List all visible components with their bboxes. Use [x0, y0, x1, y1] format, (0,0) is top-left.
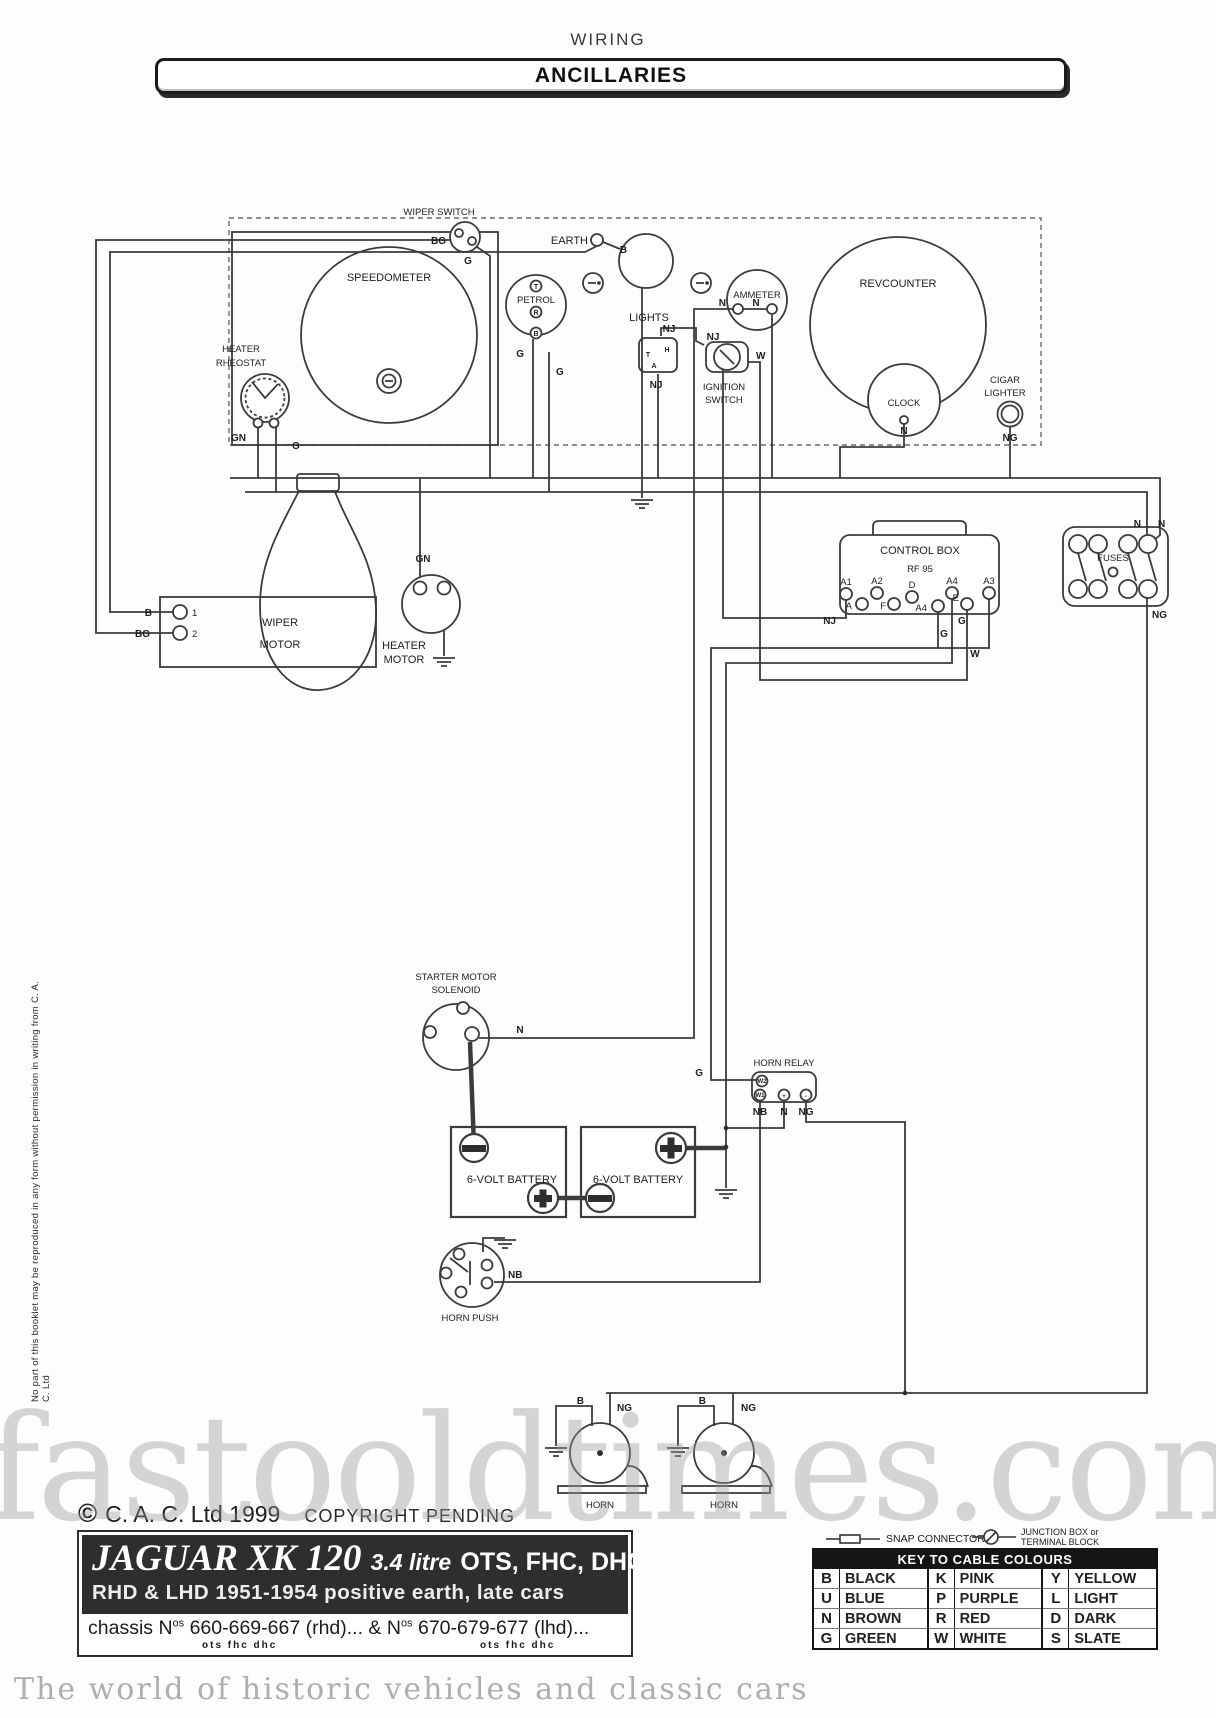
terminal-letter: A4 [915, 603, 927, 614]
petrol-label: PETROL [517, 295, 555, 306]
control-box-label: CONTROL BOX [880, 545, 960, 557]
terminal-letter: T [646, 352, 651, 359]
key-table-column: YYELLOW LLIGHT DDARK SSLATE [1041, 1569, 1156, 1648]
horn-label: HORN [710, 1500, 738, 1511]
wire-code: NJ [650, 380, 663, 391]
wire-code: G [940, 629, 948, 640]
side-note: No part of this booklet may be reproduce… [30, 970, 52, 1402]
fuse-terminal [1069, 535, 1087, 553]
wiper-motor-terminal-1 [173, 605, 187, 619]
colour-row: BBLACK [814, 1569, 927, 1589]
terminal-number: 1 [192, 608, 197, 619]
banner-ancillaries: ANCILLARIES [155, 58, 1067, 94]
horn-push-contact [441, 1268, 452, 1279]
wire-code: NG [1003, 433, 1018, 444]
terminal-number: 2 [192, 629, 197, 640]
wire-code: G [516, 349, 524, 360]
colour-name: RED [955, 1611, 991, 1627]
rheostat-terminal [270, 419, 279, 428]
key-to-cable-colours: KEY TO CABLE COLOURS BBLACK UBLUE NBROWN… [812, 1548, 1158, 1650]
fuse-box-screw [1109, 568, 1118, 577]
heater-motor-label: MOTOR [384, 654, 425, 666]
wire-code: B [577, 1396, 584, 1407]
control-terminal-a3 [983, 587, 995, 599]
colour-name: PINK [955, 1571, 995, 1587]
horn-push-contact [482, 1260, 493, 1271]
terminal-letter: W1 [756, 1093, 766, 1099]
panel-lamp-dot [597, 281, 601, 285]
ammeter-terminal [767, 304, 777, 314]
cigar-lighter-label: CIGAR [990, 375, 1020, 386]
wire-code: NJ [823, 616, 836, 627]
battery-label: 6-VOLT BATTERY [467, 1174, 558, 1186]
key-table-title: KEY TO CABLE COLOURS [814, 1550, 1156, 1569]
fuse-terminal [1089, 535, 1107, 553]
heater-motor-terminal [414, 582, 427, 595]
junction-box-label: JUNCTION BOX or TERMINAL BLOCK [1021, 1527, 1099, 1548]
wiper-motor-cap [297, 474, 339, 491]
model-name: JAGUAR XK 120 [92, 1538, 361, 1579]
wire-code: N [900, 426, 907, 437]
page-supertitle: WIRING [0, 30, 1216, 50]
colour-code: P [929, 1589, 955, 1608]
junction-box-legend: JUNCTION BOX or TERMINAL BLOCK [972, 1527, 1099, 1548]
control-terminal-e [961, 598, 973, 610]
terminal-letter: W2 [758, 1079, 768, 1085]
terminal-letter: R [533, 310, 538, 317]
colour-name: DARK [1069, 1611, 1116, 1627]
component-bodies [160, 222, 1168, 1493]
minus-icon [462, 1145, 486, 1152]
terminal-letter: - [805, 1094, 807, 1100]
control-terminal-a2 [871, 587, 883, 599]
rheostat-terminal [254, 419, 263, 428]
wire-code: BG [431, 236, 446, 247]
control-terminal-a1 [840, 588, 852, 600]
junction-box-label-line1: JUNCTION BOX or [1021, 1527, 1099, 1537]
horn-push-contact [482, 1278, 493, 1289]
wire-code: N [1134, 519, 1141, 530]
ignition-switch-label: IGNITION [703, 382, 745, 393]
warning-lamp-dial [619, 234, 673, 288]
wire-code: G [292, 441, 300, 452]
colour-code: N [814, 1609, 840, 1628]
colour-row: WWHITE [929, 1629, 1042, 1648]
horn-push-label: HORN PUSH [441, 1313, 498, 1324]
key-table-column: BBLACK UBLUE NBROWN GGREEN [814, 1569, 927, 1648]
colour-code: R [929, 1609, 955, 1628]
copyright-line: © C. A. C. Ltd 1999 COPYRIGHT PENDING [78, 1498, 515, 1529]
heater-rheostat-label: RHEOSTAT [216, 358, 267, 369]
wire-code: B [699, 1396, 706, 1407]
copyright-pending: COPYRIGHT PENDING [304, 1506, 515, 1527]
colour-name: WHITE [955, 1631, 1007, 1647]
colour-name: SLATE [1069, 1631, 1120, 1647]
ammeter-terminal [733, 304, 743, 314]
colour-code: G [814, 1629, 840, 1648]
control-terminal-f [888, 598, 900, 610]
key-table-column: KPINK PPURPLE RRED WWHITE [927, 1569, 1042, 1648]
wire-code: GN [231, 433, 246, 444]
colour-code: U [814, 1589, 840, 1608]
colour-name: BLUE [840, 1591, 884, 1607]
colour-name: YELLOW [1069, 1571, 1136, 1587]
chassis-text: 670-679-677 (lhd)... [413, 1617, 590, 1639]
control-terminal-d [906, 591, 918, 603]
chassis-sup: os [401, 1617, 413, 1629]
battery-label: 6-VOLT BATTERY [593, 1174, 684, 1186]
wiper-motor-label: WIPER [262, 617, 298, 629]
wire-code: G [464, 256, 472, 267]
fuse-terminal [1089, 580, 1107, 598]
earth-label: EARTH [551, 235, 588, 247]
wire-code: W [970, 649, 980, 660]
snap-connector-legend: SNAP CONNECTOR [826, 1533, 985, 1545]
ignition-switch-label: SWITCH [705, 395, 743, 406]
wire-code: NB [753, 1107, 767, 1118]
solenoid-terminal [465, 1027, 479, 1041]
colour-name: BLACK [840, 1571, 896, 1587]
scanned-wiring-page: WIRING ANCILLARIES [0, 0, 1216, 1718]
terminal-letter: A [846, 601, 853, 612]
speedometer-label: SPEEDOMETER [347, 272, 431, 284]
terminal-letter: D [909, 580, 916, 591]
plus-icon [668, 1138, 675, 1159]
wire-code: NJ [663, 324, 676, 335]
starter-solenoid-label: STARTER MOTOR [415, 972, 496, 983]
lights-switch-body [639, 338, 677, 372]
wire-code: BG [135, 629, 150, 640]
copyright-text: C. A. C. Ltd 1999 [105, 1501, 280, 1528]
colour-row: RRED [929, 1609, 1042, 1629]
wiper-motor-label: MOTOR [260, 639, 301, 651]
wire-code: G [958, 616, 966, 627]
control-terminal-a [856, 598, 868, 610]
colour-code: K [929, 1569, 955, 1588]
colour-code: L [1043, 1589, 1069, 1608]
fuse-terminal [1069, 580, 1087, 598]
solenoid-terminal [424, 1026, 436, 1038]
chassis-body-codes: ots fhc dhc [202, 1640, 277, 1651]
fuse-terminal [1139, 580, 1157, 598]
colour-row: KPINK [929, 1569, 1042, 1589]
terminal-letter: A1 [840, 577, 852, 588]
minus-icon [588, 1195, 612, 1202]
wiper-switch-label: WIPER SWITCH [403, 207, 474, 218]
junction-box-label-line2: TERMINAL BLOCK [1021, 1537, 1099, 1547]
wire-code: B [145, 608, 152, 619]
wire-code: NG [741, 1403, 756, 1414]
wiring-diagram: SPEEDOMETER WIPER SWITCH HEATER RHEOSTAT… [0, 0, 1216, 1718]
heater-motor-body [402, 575, 460, 633]
terminal-letter: B [533, 331, 538, 338]
terminal-letter: E [953, 593, 959, 604]
wire-code: G [556, 367, 564, 378]
earth-terminal-ring [591, 234, 603, 246]
horn-push-contact [456, 1287, 467, 1298]
colour-row: LLIGHT [1043, 1589, 1156, 1609]
terminal-letter: T [534, 284, 539, 291]
snap-connector-icon [826, 1533, 880, 1545]
colour-row: PPURPLE [929, 1589, 1042, 1609]
wire-code: NJ [707, 332, 720, 343]
colour-code: Y [1043, 1569, 1069, 1588]
horn-label: HORN [586, 1500, 614, 1511]
fuse-terminal [1119, 580, 1137, 598]
colour-row: UBLUE [814, 1589, 927, 1609]
colour-row: YYELLOW [1043, 1569, 1156, 1589]
horn-center-dot [721, 1450, 727, 1456]
fuse-terminal [1139, 535, 1157, 553]
plus-icon [540, 1190, 547, 1208]
colour-name: BROWN [840, 1611, 901, 1627]
wire-code: W [756, 351, 766, 362]
heater-rheostat-label: HEATER [222, 344, 260, 355]
chassis-body-codes: ots fhc dhc [480, 1640, 555, 1651]
horn-relay-label: HORN RELAY [753, 1058, 815, 1069]
fuses-label: FUSES [1097, 553, 1129, 564]
wire-code: GN [416, 554, 431, 565]
heater-motor-terminal [438, 582, 451, 595]
model-title-panel: JAGUAR XK 120 3.4 litre OTS, FHC, DHC RH… [82, 1535, 628, 1612]
horn-center-dot [597, 1450, 603, 1456]
chassis-text: chassis N [88, 1617, 173, 1639]
wire-code: N [516, 1025, 523, 1036]
model-subtitle: RHD & LHD 1951-1954 positive earth, late… [92, 1581, 618, 1605]
colour-code: S [1043, 1629, 1069, 1648]
panel-lamp-dot [705, 281, 709, 285]
wiper-switch-body [450, 222, 480, 252]
wire-code: B [620, 245, 627, 256]
terminal-letter: + [782, 1094, 786, 1100]
chassis-text: 660-669-667 (rhd)... & N [184, 1617, 401, 1639]
horn-left-base [558, 1486, 646, 1493]
wire-code: N [719, 298, 726, 309]
model-engine: 3.4 litre [371, 1549, 452, 1575]
fuse-terminal [1119, 535, 1137, 553]
junction-dot [724, 1126, 729, 1131]
colour-name: GREEN [840, 1631, 897, 1647]
heater-motor-label: HEATER [382, 640, 426, 652]
banner-label: ANCILLARIES [535, 64, 687, 88]
key-table-body: BBLACK UBLUE NBROWN GGREEN KPINK PPURPLE… [814, 1569, 1156, 1648]
terminal-letter: A [651, 363, 656, 370]
colour-code: W [929, 1629, 955, 1648]
wire-code: N [780, 1107, 787, 1118]
colour-row: SSLATE [1043, 1629, 1156, 1648]
control-terminal-a4 [932, 600, 944, 612]
wiper-switch-terminal [468, 237, 476, 245]
terminal-letter: H [664, 347, 669, 354]
colour-row: DDARK [1043, 1609, 1156, 1629]
colour-row: GGREEN [814, 1629, 927, 1648]
junction-dot [903, 1391, 908, 1396]
starter-solenoid-label: SOLENOID [431, 985, 480, 996]
terminal-letter: F [880, 601, 886, 612]
horn-push-contact [454, 1249, 465, 1260]
terminal-letter: A3 [983, 576, 995, 587]
revcounter-label: REVCOUNTER [859, 278, 936, 290]
colour-name: LIGHT [1069, 1591, 1118, 1607]
copyright-icon: © [78, 1498, 97, 1529]
wiper-motor-gearbox-shape [260, 489, 376, 690]
terminal-letter: A2 [871, 576, 883, 587]
model-body-styles: OTS, FHC, DHC [460, 1548, 645, 1576]
colour-row: NBROWN [814, 1609, 927, 1629]
chassis-strip: chassis Nos 660-669-667 (rhd)... & Nos 6… [82, 1612, 628, 1652]
junction-dot [724, 1145, 729, 1150]
cigar-lighter-label: LIGHTER [984, 388, 1025, 399]
colour-name: PURPLE [955, 1591, 1019, 1607]
colour-code: D [1043, 1609, 1069, 1628]
wiper-motor-terminal-2 [173, 626, 187, 640]
model-title-line: JAGUAR XK 120 3.4 litre OTS, FHC, DHC [92, 1540, 618, 1578]
wire-code: N [1158, 519, 1165, 530]
wire-code: NG [1152, 610, 1167, 621]
model-info-block: JAGUAR XK 120 3.4 litre OTS, FHC, DHC RH… [77, 1530, 633, 1657]
terminal-letter: A4 [946, 576, 958, 587]
wire-code: NG [799, 1107, 814, 1118]
wire-code: NB [508, 1270, 522, 1281]
wire-code: G [695, 1068, 703, 1079]
solenoid-terminal [457, 1002, 469, 1014]
lights-label: LIGHTS [629, 312, 669, 324]
wire-code: NG [617, 1403, 632, 1414]
clock-terminal [900, 416, 908, 424]
cigar-lighter-inner [1002, 406, 1019, 423]
horn-right-base [682, 1486, 770, 1493]
wiper-switch-terminal [455, 229, 463, 237]
colour-code: B [814, 1569, 840, 1588]
control-box-model: RF 95 [907, 564, 933, 575]
snap-connector-label: SNAP CONNECTOR [886, 1533, 985, 1545]
junction-box-icon [972, 1528, 1016, 1546]
chassis-sup: os [173, 1617, 185, 1629]
clock-label: CLOCK [888, 398, 921, 409]
wire-code: N [752, 298, 759, 309]
